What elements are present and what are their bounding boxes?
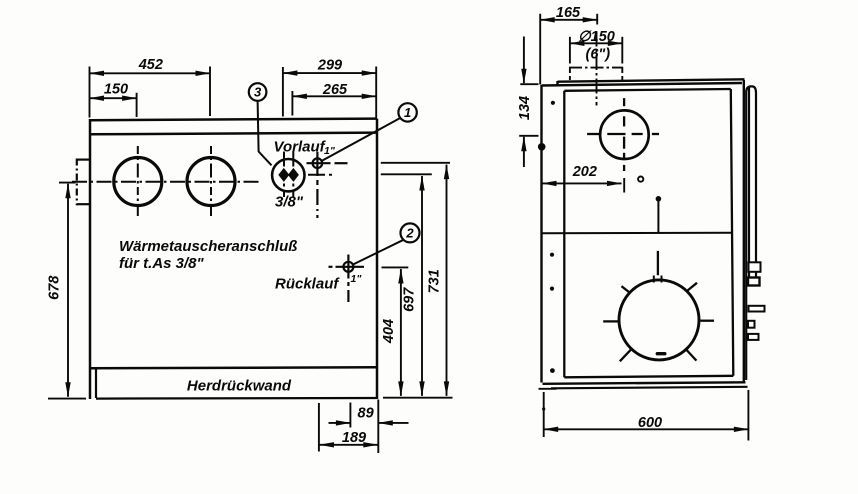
svg-text:134: 134: [517, 96, 533, 120]
svg-text:89: 89: [358, 405, 374, 421]
svg-text:für t.As 3/8": für t.As 3/8": [119, 255, 205, 272]
svg-text:1: 1: [404, 105, 411, 120]
svg-text:Herdrückwand: Herdrückwand: [187, 378, 292, 395]
svg-text:Vorlauf: Vorlauf: [274, 139, 327, 156]
svg-text:∅150: ∅150: [578, 29, 615, 45]
svg-text:697: 697: [402, 287, 418, 312]
svg-text:3/8": 3/8": [275, 194, 304, 211]
svg-text:(6"): (6"): [586, 47, 611, 63]
svg-text:150: 150: [104, 82, 128, 98]
svg-text:265: 265: [322, 82, 348, 98]
svg-text:600: 600: [638, 415, 662, 431]
svg-text:Rücklauf: Rücklauf: [275, 276, 340, 293]
svg-text:731: 731: [427, 269, 443, 293]
svg-text:189: 189: [342, 430, 366, 446]
svg-text:202: 202: [572, 164, 597, 180]
svg-text:2: 2: [405, 226, 414, 241]
svg-text:678: 678: [46, 275, 62, 300]
svg-text:299: 299: [317, 58, 342, 74]
svg-text:404: 404: [381, 319, 397, 344]
svg-text:3: 3: [254, 85, 262, 100]
svg-text:Wärmetauscheranschluß: Wärmetauscheranschluß: [119, 238, 297, 255]
svg-text:452: 452: [138, 57, 163, 73]
svg-text:165: 165: [556, 5, 581, 21]
svg-text:1": 1": [351, 273, 363, 285]
